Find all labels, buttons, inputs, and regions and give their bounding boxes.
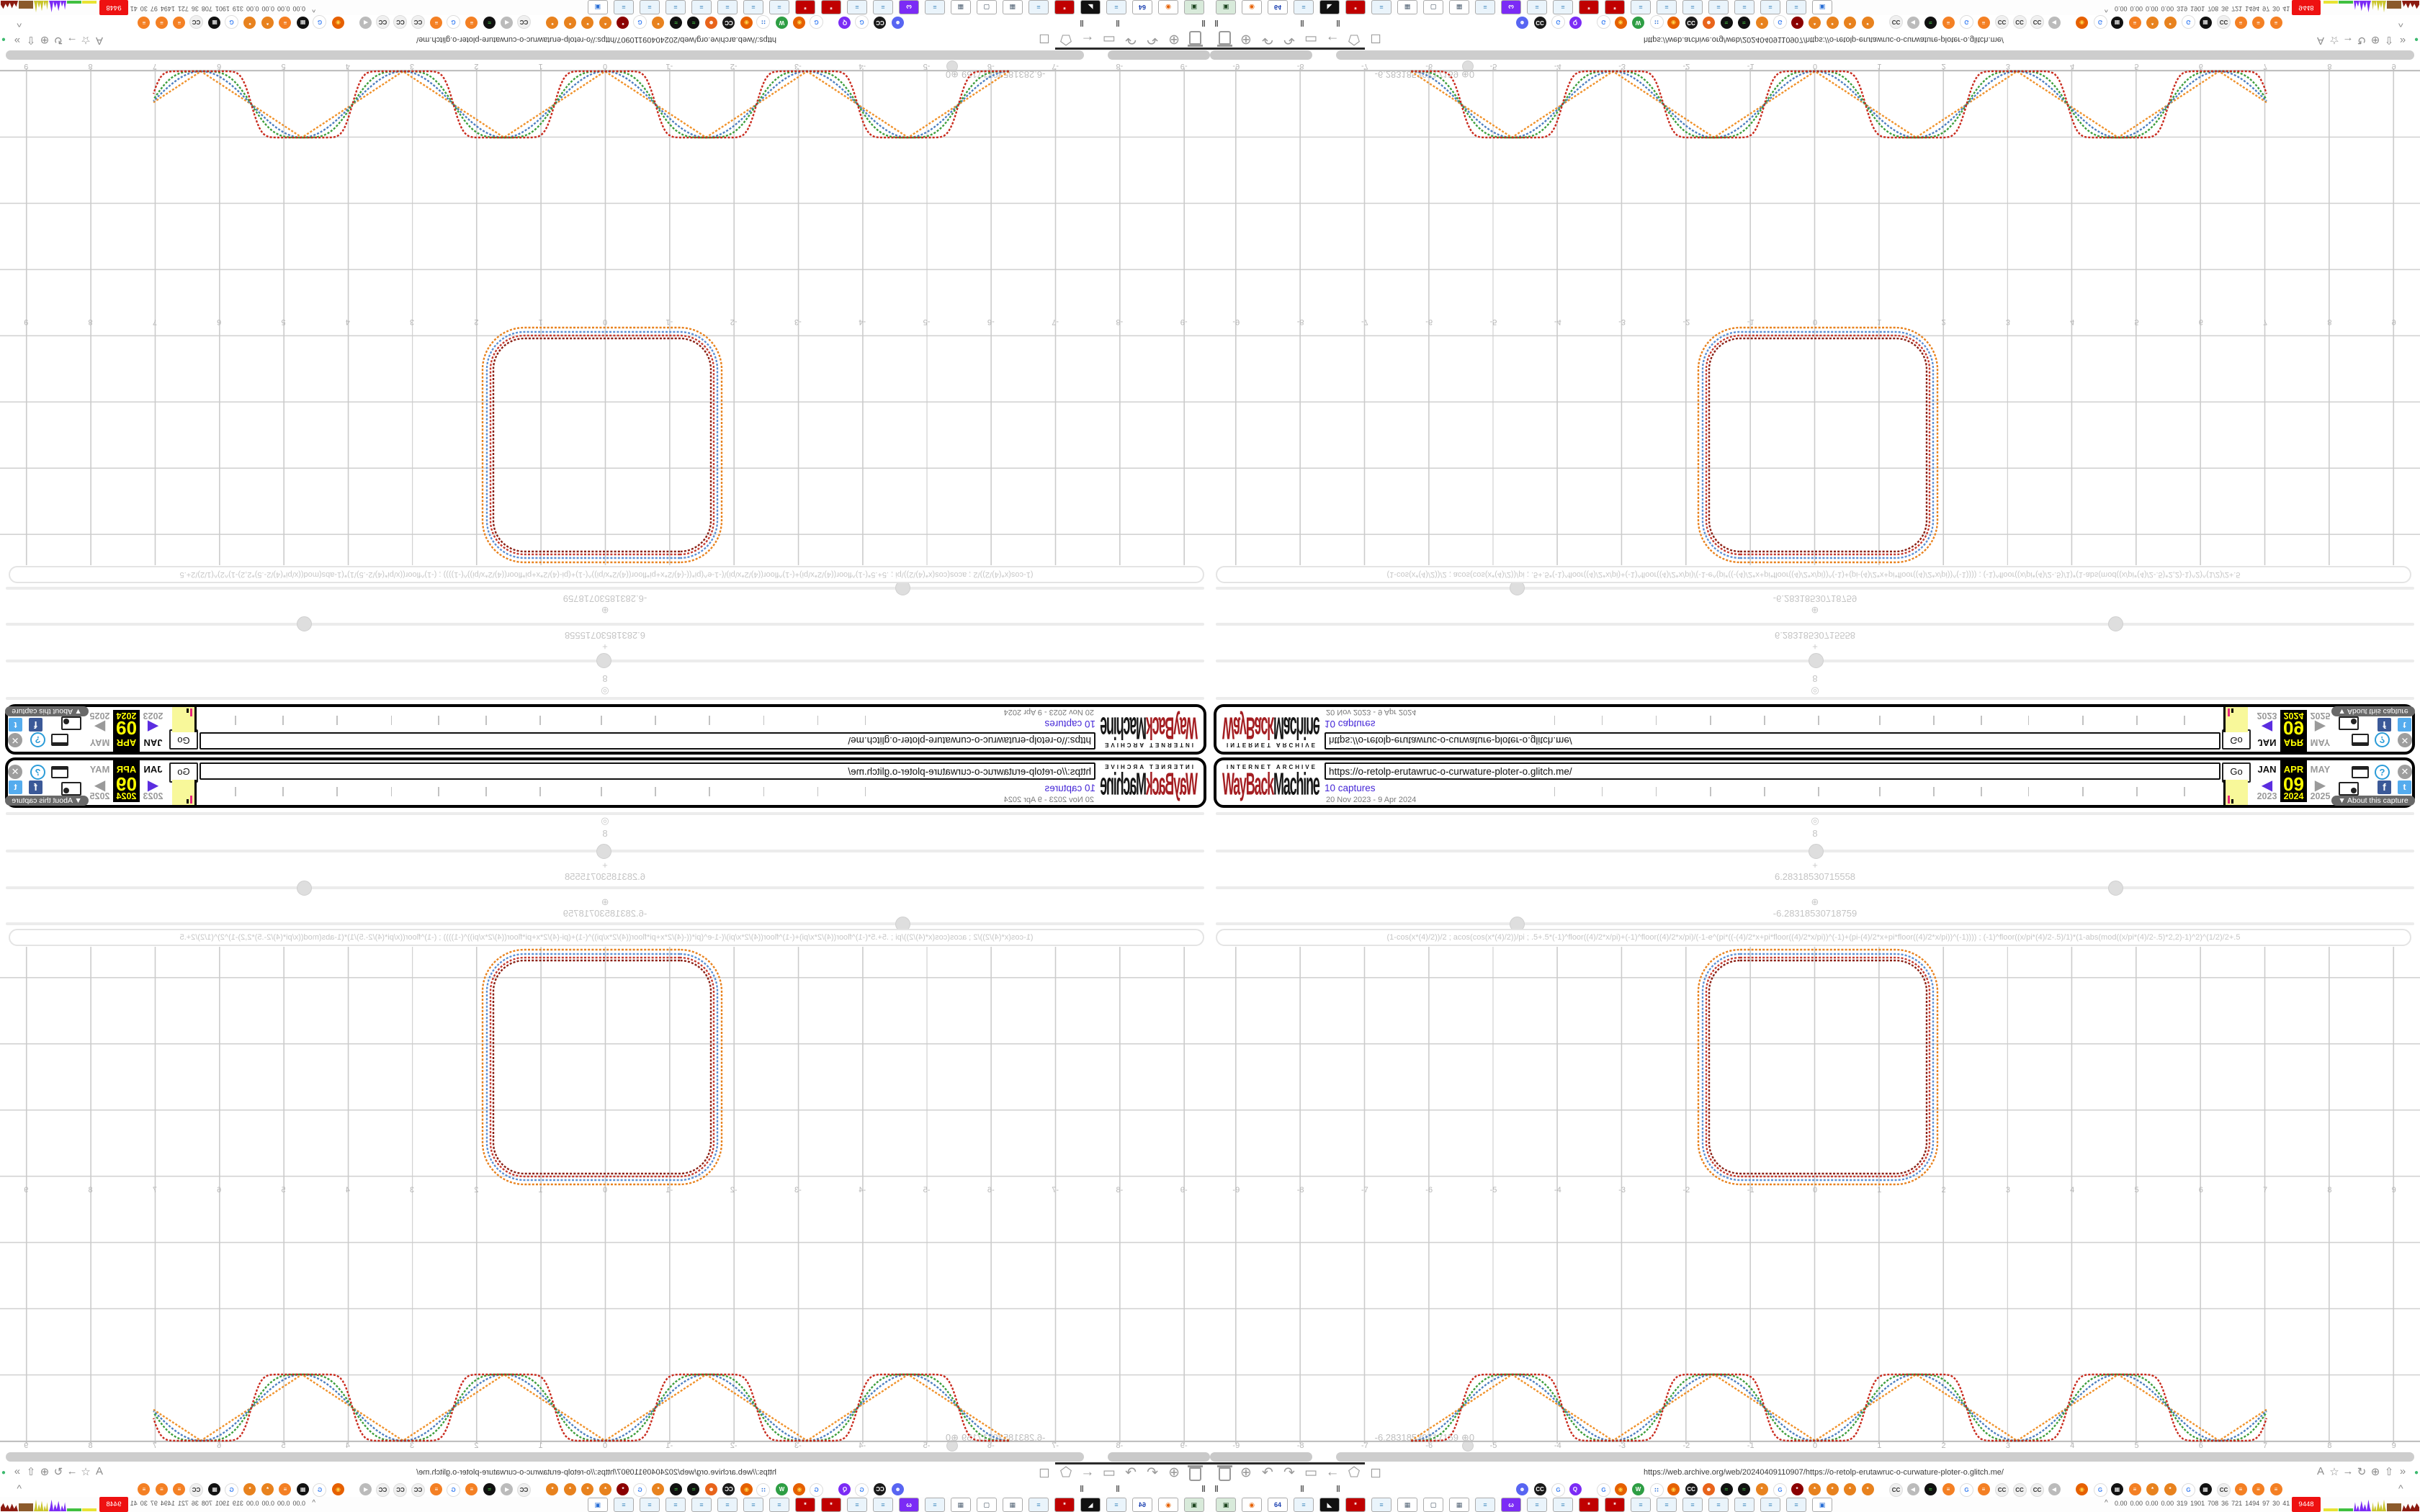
- back-icon[interactable]: ←: [1077, 1464, 1098, 1480]
- bookmark-favicon[interactable]: G: [855, 15, 869, 29]
- slider-thumb[interactable]: [2108, 881, 2123, 896]
- taskbar-app-button[interactable]: ◉: [1242, 1498, 1262, 1512]
- taskbar-app-button[interactable]: ≡: [1294, 0, 1314, 14]
- taskbar-app-button[interactable]: ≡: [743, 1498, 763, 1512]
- inner-scrollbar-thumb[interactable]: [1108, 50, 1210, 60]
- slider-thumb[interactable]: [297, 616, 312, 631]
- taskbar-app-button[interactable]: ≡: [1682, 0, 1703, 14]
- status-dot-icon[interactable]: ●: [0, 1465, 11, 1481]
- bookmark-favicon[interactable]: G: [1773, 15, 1787, 29]
- taskbar-app-button[interactable]: ≡: [1734, 0, 1754, 14]
- forward-icon[interactable]: →: [65, 1465, 79, 1477]
- translate-icon[interactable]: A: [92, 35, 107, 47]
- back-icon[interactable]: ←: [1322, 32, 1343, 48]
- bookmark-favicon[interactable]: Q: [1569, 1483, 1582, 1495]
- bookmark-favicon[interactable]: Q: [1569, 17, 1582, 29]
- bookmark-favicon[interactable]: ≡: [431, 17, 443, 29]
- taskbar-app-button[interactable]: ◉: [1158, 0, 1178, 14]
- chevrons-icon[interactable]: »: [2396, 1465, 2410, 1477]
- slider-track[interactable]: [6, 623, 1204, 626]
- globe-icon[interactable]: ⊕: [1164, 1464, 1184, 1481]
- bookmark-favicon[interactable]: G: [633, 15, 647, 29]
- taskbar-app-button[interactable]: ▢: [1423, 0, 1443, 14]
- undo-icon[interactable]: ↶: [1142, 1464, 1162, 1481]
- taskbar-app-button[interactable]: ≡: [1734, 1498, 1754, 1512]
- bookmark-favicon[interactable]: *: [1862, 17, 1874, 29]
- bookmark-favicon[interactable]: CC: [1889, 15, 1903, 29]
- taskbar-app-button[interactable]: ▢: [977, 0, 997, 14]
- bookmark-favicon[interactable]: ≡: [279, 1483, 292, 1495]
- taskbar-app-button[interactable]: ≡: [873, 0, 893, 14]
- bookmark-favicon[interactable]: CC: [2217, 1483, 2231, 1497]
- thumbs-up-icon[interactable]: ⇧: [24, 34, 38, 47]
- page-icon[interactable]: ▭: [1099, 31, 1119, 48]
- globe-icon[interactable]: ⊕: [2368, 1465, 2383, 1478]
- globe-icon[interactable]: ⊕: [2368, 34, 2383, 47]
- inner-scrollbar-thumb[interactable]: [1210, 1452, 1312, 1462]
- globe-icon[interactable]: ⊕: [1236, 31, 1256, 48]
- slider-thumb[interactable]: [596, 844, 611, 859]
- bookmark-favicon[interactable]: ◀: [1907, 1483, 1919, 1495]
- slider-thumb[interactable]: [596, 653, 611, 668]
- bookmark-favicon[interactable]: G: [225, 15, 238, 29]
- taskbar-app-button[interactable]: ≡: [691, 1498, 712, 1512]
- bookmark-favicon[interactable]: W: [1632, 1483, 1644, 1495]
- bookmark-favicon[interactable]: ≡: [2252, 1483, 2264, 1495]
- taskbar-app-button[interactable]: ▦: [1397, 1498, 1417, 1512]
- bookmark-favicon[interactable]: ≈: [688, 17, 700, 29]
- slider-thumb[interactable]: [2108, 616, 2123, 631]
- star-icon[interactable]: ☆: [79, 1465, 93, 1478]
- bookmark-favicon[interactable]: ≈: [1738, 17, 1750, 29]
- bookmark-favicon[interactable]: ≡: [2235, 1483, 2247, 1495]
- bookmark-favicon[interactable]: *: [564, 1483, 576, 1495]
- bookmark-favicon[interactable]: CC: [723, 17, 735, 29]
- bookmark-favicon[interactable]: *: [2164, 1483, 2177, 1495]
- status-dot-icon[interactable]: ●: [0, 31, 11, 47]
- bookmark-favicon[interactable]: W: [1632, 17, 1644, 29]
- taskbar-app-button[interactable]: ≡: [1106, 1498, 1126, 1512]
- bookmark-favicon[interactable]: W: [776, 17, 788, 29]
- bookmark-favicon[interactable]: G: [313, 15, 327, 29]
- bookmark-favicon[interactable]: CC: [874, 17, 887, 29]
- slider-track[interactable]: [1216, 623, 2414, 626]
- taskbar-app-button[interactable]: ▣: [1216, 0, 1236, 14]
- page-icon[interactable]: ▭: [1099, 1464, 1119, 1481]
- bookmark-favicon[interactable]: ≈: [483, 1483, 496, 1495]
- bookmarks-collapse-icon[interactable]: ^: [2398, 1482, 2403, 1494]
- slider-track[interactable]: [1216, 922, 2414, 925]
- bookmark-favicon[interactable]: *: [599, 17, 611, 29]
- bookmark-favicon[interactable]: CC: [874, 1483, 887, 1495]
- taskbar-app-button[interactable]: ▣: [1812, 1498, 1832, 1512]
- horizontal-scrollbar-thumb[interactable]: [1336, 50, 2414, 60]
- taskbar-app-button[interactable]: 64: [1268, 0, 1288, 14]
- taskbar-app-button[interactable]: ▦: [951, 1498, 971, 1512]
- bookmark-favicon[interactable]: *: [1862, 1483, 1874, 1495]
- taskbar-app-button[interactable]: ▦: [1003, 0, 1023, 14]
- back-icon[interactable]: ←: [1077, 32, 1098, 48]
- bookmark-favicon[interactable]: ≈: [1721, 17, 1733, 29]
- bookmark-favicon[interactable]: ☻: [1703, 17, 1715, 29]
- bookmark-favicon[interactable]: ∷: [757, 15, 771, 29]
- chevrons-icon[interactable]: »: [2396, 35, 2410, 47]
- bookmark-favicon[interactable]: *: [1827, 1483, 1839, 1495]
- taskbar-app-button[interactable]: *: [1054, 1498, 1075, 1512]
- bookmark-favicon[interactable]: ◀: [360, 1483, 372, 1495]
- page-icon[interactable]: ▭: [1301, 31, 1321, 48]
- slider-track[interactable]: [6, 886, 1204, 889]
- bookmark-favicon[interactable]: *: [1756, 17, 1768, 29]
- taskbar-app-button[interactable]: ▦: [1003, 1498, 1023, 1512]
- star-icon[interactable]: ☆: [2327, 34, 2341, 47]
- undo-icon[interactable]: ↶: [1142, 31, 1162, 48]
- shield-icon[interactable]: ⬠: [1344, 31, 1364, 48]
- taskbar-app-button[interactable]: ≡: [1371, 1498, 1391, 1512]
- horizontal-scrollbar-thumb[interactable]: [6, 50, 1084, 60]
- taskbar-app-button[interactable]: ≡: [1786, 1498, 1806, 1512]
- taskbar-app-button[interactable]: ▦: [1449, 0, 1469, 14]
- bookmark-favicon[interactable]: ≡: [138, 1483, 151, 1495]
- bookmark-favicon[interactable]: ◉: [1667, 17, 1680, 29]
- lock-icon[interactable]: ◻: [1034, 1464, 1054, 1481]
- slider-track[interactable]: [6, 587, 1204, 590]
- bookmark-favicon[interactable]: CC: [1685, 1483, 1698, 1495]
- bookmark-favicon[interactable]: CC: [376, 1483, 390, 1497]
- lock-icon[interactable]: ◻: [1034, 31, 1054, 48]
- trash-icon[interactable]: [1214, 27, 1234, 48]
- bookmark-favicon[interactable]: ∷: [1650, 1483, 1664, 1497]
- taskbar-app-button[interactable]: *: [1054, 0, 1075, 14]
- taskbar-app-button[interactable]: ≡: [1106, 0, 1126, 14]
- bookmark-favicon[interactable]: ◉: [2076, 1483, 2088, 1495]
- taskbar-app-button[interactable]: ≡: [1553, 1498, 1573, 1512]
- bookmark-favicon[interactable]: ▦: [2111, 1483, 2123, 1495]
- forward-icon[interactable]: →: [2341, 1465, 2355, 1477]
- bookmark-favicon[interactable]: ◀: [2048, 1483, 2061, 1495]
- bookmark-favicon[interactable]: ≡: [1978, 1483, 1990, 1495]
- bookmark-favicon[interactable]: CC: [2013, 1483, 2027, 1497]
- taskbar-app-button[interactable]: ≡: [1527, 1498, 1547, 1512]
- bookmark-favicon[interactable]: ≈: [670, 17, 682, 29]
- target-icon[interactable]: ◎: [1793, 815, 1837, 827]
- taskbar-app-button[interactable]: ≡: [1760, 0, 1780, 14]
- bookmark-favicon[interactable]: ≈: [1924, 1483, 1937, 1495]
- bookmark-favicon[interactable]: G: [633, 1483, 647, 1497]
- slider-thumb[interactable]: [1809, 844, 1824, 859]
- bookmark-favicon[interactable]: ◉: [740, 17, 753, 29]
- target-icon[interactable]: ◎: [1793, 685, 1837, 697]
- bookmark-favicon[interactable]: ≡: [174, 17, 186, 29]
- taskbar-app-button[interactable]: ≡: [925, 1498, 945, 1512]
- chevrons-icon[interactable]: »: [10, 1465, 24, 1477]
- slider-thumb[interactable]: [1809, 653, 1824, 668]
- translate-icon[interactable]: A: [2313, 35, 2328, 47]
- bookmark-favicon[interactable]: CC: [2217, 15, 2231, 29]
- bookmark-favicon[interactable]: ☻: [1516, 17, 1528, 29]
- bookmark-favicon[interactable]: ≈: [483, 17, 496, 29]
- slider-track[interactable]: [6, 922, 1204, 925]
- bookmark-favicon[interactable]: ▦: [209, 1483, 221, 1495]
- taskbar-app-button[interactable]: 64: [1268, 1498, 1288, 1512]
- taskbar-app-button[interactable]: ▢: [977, 1498, 997, 1512]
- bookmarks-collapse-icon[interactable]: ^: [17, 18, 22, 30]
- globe-icon[interactable]: ⊕: [37, 1465, 52, 1478]
- taskbar-app-button[interactable]: ω: [899, 1498, 919, 1512]
- bookmark-favicon[interactable]: ≡: [156, 17, 168, 29]
- bookmark-favicon[interactable]: G: [2094, 15, 2107, 29]
- taskbar-app-button[interactable]: ◣: [1319, 0, 1340, 14]
- taskbar-app-button[interactable]: ≡: [717, 1498, 738, 1512]
- taskbar-app-button[interactable]: 64: [1132, 0, 1152, 14]
- bookmark-favicon[interactable]: ◉: [1667, 1483, 1680, 1495]
- bookmark-favicon[interactable]: *: [1756, 1483, 1768, 1495]
- reload-icon[interactable]: ↻: [2354, 1465, 2369, 1478]
- taskbar-app-button[interactable]: ≡: [1682, 1498, 1703, 1512]
- bookmark-favicon[interactable]: G: [2182, 15, 2195, 29]
- taskbar-app-button[interactable]: ≡: [1631, 0, 1651, 14]
- bookmark-favicon[interactable]: CC: [1995, 1483, 2009, 1497]
- shield-icon[interactable]: ⬠: [1056, 31, 1076, 48]
- taskbar-app-button[interactable]: ≡: [847, 0, 867, 14]
- bookmark-favicon[interactable]: G: [1551, 15, 1565, 29]
- taskbar-app-button[interactable]: ≡: [1631, 1498, 1651, 1512]
- taskbar-app-button[interactable]: ◣: [1080, 1498, 1101, 1512]
- bookmark-favicon[interactable]: ▦: [209, 17, 221, 29]
- bookmark-favicon[interactable]: *: [653, 1483, 665, 1495]
- taskbar-app-button[interactable]: ▣: [1812, 0, 1832, 14]
- star-icon[interactable]: ☆: [2327, 1465, 2341, 1478]
- forward-icon[interactable]: →: [65, 35, 79, 47]
- redo-icon[interactable]: ↷: [1279, 31, 1299, 48]
- bookmark-favicon[interactable]: CC: [394, 1483, 408, 1497]
- bookmark-favicon[interactable]: *: [1809, 17, 1821, 29]
- taskbar-app-button[interactable]: ≡: [1657, 0, 1677, 14]
- bookmark-favicon[interactable]: ≡: [431, 1483, 443, 1495]
- undo-icon[interactable]: ↶: [1258, 1464, 1278, 1481]
- bookmark-favicon[interactable]: Q: [839, 1483, 851, 1495]
- globe-icon[interactable]: ⊕: [1236, 1464, 1256, 1481]
- taskbar-app-button[interactable]: ≡: [1786, 0, 1806, 14]
- reload-icon[interactable]: ↻: [51, 1465, 66, 1478]
- bookmark-favicon[interactable]: *: [1791, 1483, 1803, 1495]
- globe-icon[interactable]: ⊕: [37, 34, 52, 47]
- bookmark-favicon[interactable]: ▦: [2200, 1483, 2212, 1495]
- bookmark-favicon[interactable]: ◀: [1907, 17, 1919, 29]
- taskbar-app-button[interactable]: ≡: [1475, 1498, 1495, 1512]
- bookmark-favicon[interactable]: ☻: [1516, 1483, 1528, 1495]
- slider-thumb[interactable]: [297, 881, 312, 896]
- bookmark-favicon[interactable]: ◉: [794, 17, 806, 29]
- trash-icon[interactable]: [1186, 27, 1206, 48]
- bookmark-favicon[interactable]: *: [1827, 17, 1839, 29]
- translate-icon[interactable]: A: [92, 1465, 107, 1477]
- bookmark-favicon[interactable]: *: [1844, 17, 1856, 29]
- taskbar-app-button[interactable]: ▦: [1449, 1498, 1469, 1512]
- taskbar-app-button[interactable]: ≡: [1657, 1498, 1677, 1512]
- bookmark-favicon[interactable]: ≡: [466, 17, 478, 29]
- lock-icon[interactable]: ◻: [1366, 1464, 1386, 1481]
- taskbar-app-button[interactable]: ◣: [1319, 1498, 1340, 1512]
- taskbar-app-button[interactable]: *: [1605, 1498, 1625, 1512]
- bookmark-favicon[interactable]: ◀: [501, 17, 514, 29]
- taskbar-app-button[interactable]: ▣: [1184, 0, 1204, 14]
- bookmark-favicon[interactable]: G: [1960, 15, 1973, 29]
- taskbar-app-button[interactable]: ▣: [1184, 1498, 1204, 1512]
- bookmark-favicon[interactable]: G: [1960, 1483, 1973, 1497]
- bookmark-favicon[interactable]: *: [1791, 17, 1803, 29]
- undo-icon[interactable]: ↶: [1258, 31, 1278, 48]
- bookmark-favicon[interactable]: *: [582, 1483, 594, 1495]
- forward-icon[interactable]: →: [2341, 35, 2355, 47]
- bookmark-favicon[interactable]: ≡: [466, 1483, 478, 1495]
- bookmark-favicon[interactable]: *: [653, 17, 665, 29]
- bookmark-favicon[interactable]: ☻: [1703, 1483, 1715, 1495]
- taskbar-app-button[interactable]: ≡: [691, 0, 712, 14]
- taskbar-app-button[interactable]: ≡: [1708, 0, 1729, 14]
- bookmark-favicon[interactable]: ◉: [740, 1483, 753, 1495]
- globe-icon[interactable]: ⊕: [1164, 31, 1184, 48]
- bookmark-favicon[interactable]: G: [313, 1483, 327, 1497]
- bookmark-favicon[interactable]: ≡: [2129, 1483, 2141, 1495]
- bookmark-favicon[interactable]: ≡: [2129, 17, 2141, 29]
- status-dot-icon[interactable]: ●: [2409, 1465, 2420, 1481]
- shield-icon[interactable]: ⬠: [1056, 1464, 1076, 1481]
- bookmark-favicon[interactable]: G: [2182, 1483, 2195, 1497]
- bookmark-favicon[interactable]: ≡: [138, 17, 151, 29]
- bookmark-favicon[interactable]: ≈: [1924, 17, 1937, 29]
- bookmark-favicon[interactable]: W: [776, 1483, 788, 1495]
- taskbar-app-button[interactable]: ▢: [1423, 1498, 1443, 1512]
- taskbar-app-button[interactable]: ≡: [614, 0, 634, 14]
- bookmark-favicon[interactable]: ≡: [1942, 17, 1955, 29]
- address-bar-url[interactable]: https://web.archive.org/web/202404091109…: [1644, 1468, 2004, 1477]
- bookmark-favicon[interactable]: CC: [189, 15, 203, 29]
- thumbs-up-icon[interactable]: ⇧: [2382, 34, 2396, 47]
- taskbar-app-button[interactable]: ≡: [665, 0, 686, 14]
- bookmark-favicon[interactable]: ▦: [297, 17, 309, 29]
- taskbar-app-button[interactable]: ≡: [640, 1498, 660, 1512]
- bookmark-favicon[interactable]: *: [564, 17, 576, 29]
- bookmark-favicon[interactable]: G: [225, 1483, 238, 1497]
- taskbar-app-button[interactable]: ≡: [1708, 1498, 1729, 1512]
- bookmark-favicon[interactable]: *: [244, 1483, 256, 1495]
- bookmark-favicon[interactable]: G: [855, 1483, 869, 1497]
- bookmark-favicon[interactable]: CC: [411, 15, 425, 29]
- taskbar-app-button[interactable]: ≡: [640, 0, 660, 14]
- address-bar-url[interactable]: https://web.archive.org/web/202404091109…: [416, 1468, 776, 1477]
- bookmark-favicon[interactable]: ☻: [705, 17, 717, 29]
- bookmark-favicon[interactable]: CC: [189, 1483, 203, 1497]
- taskbar-app-button[interactable]: *: [821, 1498, 841, 1512]
- bookmark-favicon[interactable]: ◉: [332, 1483, 344, 1495]
- bookmark-favicon[interactable]: G: [2094, 1483, 2107, 1497]
- target-icon[interactable]: ◎: [583, 685, 627, 697]
- bookmark-favicon[interactable]: *: [261, 17, 274, 29]
- status-dot-icon[interactable]: ●: [2409, 31, 2420, 47]
- bookmark-favicon[interactable]: CC: [1889, 1483, 1903, 1497]
- bookmark-favicon[interactable]: ◉: [2076, 17, 2088, 29]
- taskbar-app-button[interactable]: ◣: [1080, 0, 1101, 14]
- taskbar-app-button[interactable]: ≡: [1527, 0, 1547, 14]
- bookmark-favicon[interactable]: ≡: [279, 17, 292, 29]
- slider-track[interactable]: [1216, 886, 2414, 889]
- bookmark-favicon[interactable]: ≈: [1721, 1483, 1733, 1495]
- shield-icon[interactable]: ⬠: [1344, 1464, 1364, 1481]
- bookmark-favicon[interactable]: ◉: [1615, 17, 1627, 29]
- taskbar-app-button[interactable]: ▦: [951, 0, 971, 14]
- horizontal-scrollbar-thumb[interactable]: [6, 1452, 1084, 1462]
- taskbar-app-button[interactable]: *: [795, 1498, 815, 1512]
- bookmark-favicon[interactable]: CC: [411, 1483, 425, 1497]
- bookmark-favicon[interactable]: ≡: [1942, 1483, 1955, 1495]
- bookmark-favicon[interactable]: G: [1551, 1483, 1565, 1497]
- bookmark-favicon[interactable]: ∷: [757, 1483, 771, 1497]
- bookmark-favicon[interactable]: ≡: [1978, 17, 1990, 29]
- taskbar-app-button[interactable]: ≡: [769, 1498, 789, 1512]
- bookmark-favicon[interactable]: ▦: [2111, 17, 2123, 29]
- bookmark-favicon[interactable]: *: [2146, 17, 2159, 29]
- taskbar-app-button[interactable]: ω: [899, 0, 919, 14]
- taskbar-app-button[interactable]: ≡: [1028, 0, 1049, 14]
- bookmark-favicon[interactable]: CC: [723, 1483, 735, 1495]
- taskbar-app-button[interactable]: ≡: [847, 1498, 867, 1512]
- taskbar-app-button[interactable]: *: [1579, 0, 1599, 14]
- meters-expander-icon[interactable]: ^: [2105, 5, 2108, 13]
- slider-track[interactable]: [6, 697, 1204, 700]
- taskbar-app-button[interactable]: ≡: [769, 0, 789, 14]
- taskbar-app-button[interactable]: ▣: [1216, 1498, 1236, 1512]
- taskbar-app-button[interactable]: ≡: [1475, 0, 1495, 14]
- bookmark-favicon[interactable]: CC: [2030, 1483, 2044, 1497]
- bookmark-favicon[interactable]: ▦: [2200, 17, 2212, 29]
- taskbar-app-button[interactable]: ▦: [1397, 0, 1417, 14]
- redo-icon[interactable]: ↷: [1279, 1464, 1299, 1481]
- meters-expander-icon[interactable]: ^: [312, 1499, 315, 1507]
- bookmark-favicon[interactable]: ≈: [670, 1483, 682, 1495]
- bookmark-favicon[interactable]: G: [810, 15, 823, 29]
- address-bar-url[interactable]: https://web.archive.org/web/202404091109…: [1644, 35, 2004, 44]
- taskbar-app-button[interactable]: ≡: [665, 1498, 686, 1512]
- bookmark-favicon[interactable]: ≡: [156, 1483, 168, 1495]
- bookmark-favicon[interactable]: G: [1597, 15, 1610, 29]
- bookmark-favicon[interactable]: CC: [517, 15, 531, 29]
- taskbar-app-button[interactable]: ◉: [1242, 0, 1262, 14]
- bookmark-favicon[interactable]: ≈: [1738, 1483, 1750, 1495]
- taskbar-app-button[interactable]: *: [795, 0, 815, 14]
- taskbar-app-button[interactable]: ▣: [588, 0, 608, 14]
- taskbar-app-button[interactable]: ≡: [614, 1498, 634, 1512]
- bookmark-favicon[interactable]: ≈: [688, 1483, 700, 1495]
- taskbar-app-button[interactable]: ω: [1501, 0, 1521, 14]
- chevrons-icon[interactable]: »: [10, 35, 24, 47]
- reload-icon[interactable]: ↻: [51, 34, 66, 47]
- bookmark-favicon[interactable]: ◉: [1615, 1483, 1627, 1495]
- taskbar-app-button[interactable]: 64: [1132, 1498, 1152, 1512]
- bookmark-favicon[interactable]: *: [547, 17, 559, 29]
- bookmark-favicon[interactable]: ◀: [360, 17, 372, 29]
- thumbs-up-icon[interactable]: ⇧: [24, 1465, 38, 1478]
- bookmark-favicon[interactable]: ∷: [1650, 15, 1664, 29]
- thumbs-up-icon[interactable]: ⇧: [2382, 1465, 2396, 1478]
- bookmark-favicon[interactable]: CC: [1534, 17, 1546, 29]
- redo-icon[interactable]: ↷: [1121, 31, 1141, 48]
- bookmark-favicon[interactable]: *: [582, 17, 594, 29]
- taskbar-app-button[interactable]: *: [1345, 0, 1366, 14]
- page-icon[interactable]: ▭: [1301, 1464, 1321, 1481]
- bookmarks-collapse-icon[interactable]: ^: [2398, 18, 2403, 30]
- taskbar-app-button[interactable]: ≡: [1553, 0, 1573, 14]
